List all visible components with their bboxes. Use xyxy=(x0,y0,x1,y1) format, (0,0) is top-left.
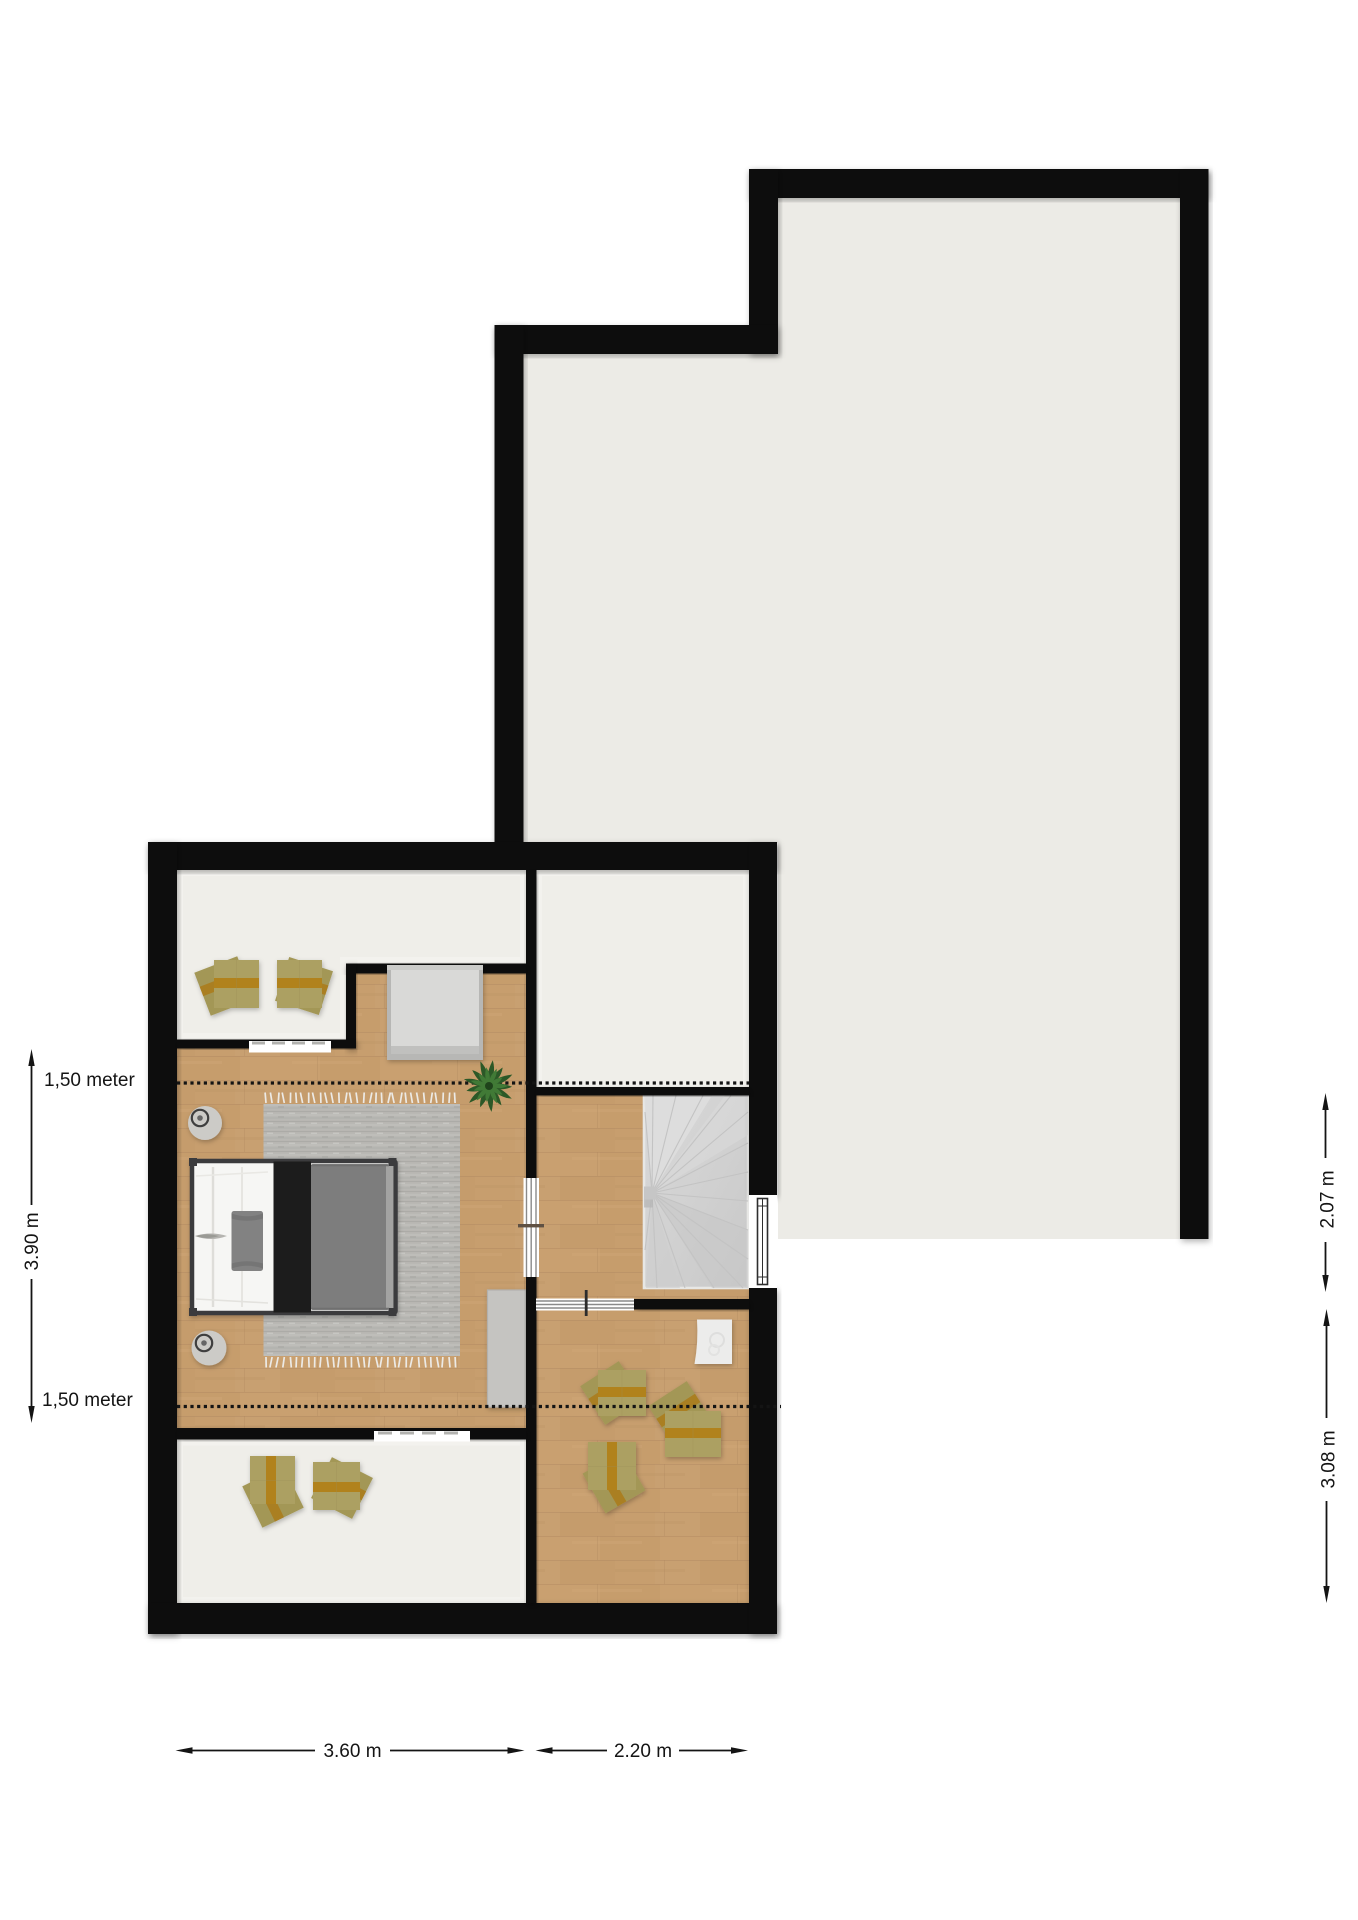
svg-text:3.90 m: 3.90 m xyxy=(22,1212,43,1270)
svg-text:3.08 m: 3.08 m xyxy=(1319,1430,1340,1488)
svg-text:2.07 m: 2.07 m xyxy=(1318,1170,1339,1228)
svg-text:2.20 m: 2.20 m xyxy=(614,1741,672,1762)
svg-text:3.60 m: 3.60 m xyxy=(323,1741,381,1762)
svg-text:1,50 meter: 1,50 meter xyxy=(44,1070,135,1091)
svg-text:1,50 meter: 1,50 meter xyxy=(42,1390,133,1411)
